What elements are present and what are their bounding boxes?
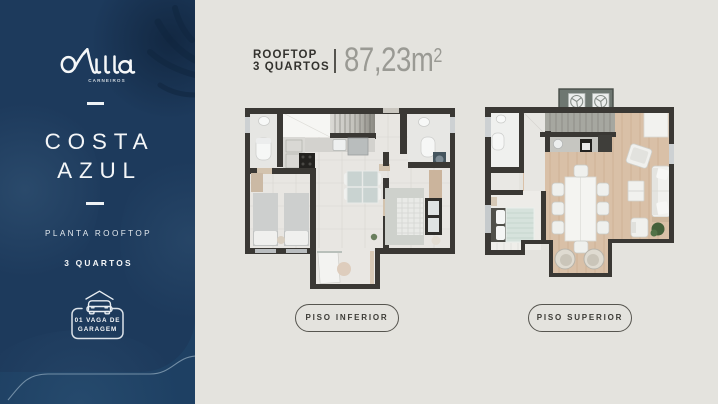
svg-text:CARNEIROS: CARNEIROS: [88, 78, 125, 83]
